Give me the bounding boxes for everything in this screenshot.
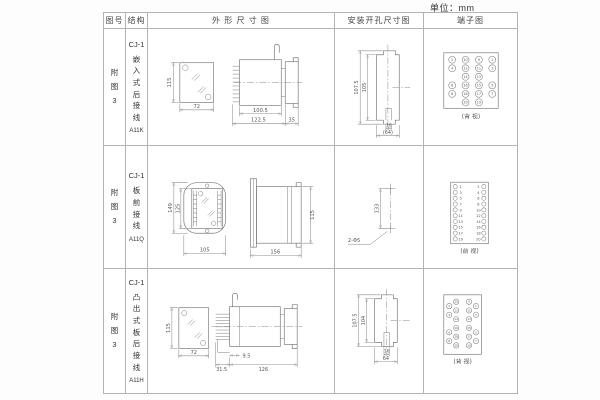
terminal-number: 16 bbox=[454, 326, 458, 330]
terminal-number: 4 bbox=[451, 66, 453, 70]
terminal-number: 12 bbox=[476, 214, 481, 218]
header-terminal-diagram: 端子图 bbox=[424, 13, 518, 29]
terminal-circle bbox=[482, 190, 486, 194]
outline-svg-a11k: 115 72 100.5 122.5 35 bbox=[148, 29, 334, 145]
terminal-number: 20 bbox=[463, 101, 467, 105]
terminal-diagram-a11h: (背 视) 2109141211314136161558181772019 bbox=[424, 269, 518, 394]
terminal-number: 11 bbox=[458, 214, 463, 218]
dim-label: 16 bbox=[386, 122, 392, 128]
mirror-mark-icon bbox=[188, 320, 202, 339]
dim-label: 105 bbox=[362, 83, 368, 92]
terminal-circle bbox=[482, 208, 486, 212]
model-code: A11Q bbox=[129, 237, 144, 243]
terminal-number: 5 bbox=[459, 197, 461, 201]
terminal-svg-a11h: (背 视) 2109141211314136161558181772019 bbox=[424, 269, 517, 393]
terminal-number: 11 bbox=[467, 308, 471, 312]
terminal-number: 20 bbox=[454, 343, 458, 347]
terminal-number: 2 bbox=[448, 304, 450, 308]
terminal-circle bbox=[453, 196, 457, 200]
view-label: (前 视) bbox=[460, 247, 478, 255]
terminal-number: 20 bbox=[476, 237, 481, 241]
terminal-number: 6 bbox=[448, 330, 450, 334]
terminal-circle bbox=[453, 237, 457, 241]
terminal-number: 10 bbox=[476, 208, 481, 212]
terminal-circle bbox=[453, 231, 457, 235]
dim-label: 104 bbox=[361, 316, 367, 325]
structure-row3: CJ-1 凸 出 式 板 后 接 线 A11H bbox=[126, 269, 148, 394]
terminal-number: 15 bbox=[458, 226, 463, 230]
dim-label: 31.5 bbox=[216, 367, 227, 373]
terminal-svg-a11k: (背 视) 2109141211314136161558181772019 bbox=[424, 29, 517, 145]
terminal-number: 7 bbox=[475, 339, 477, 343]
series-label: CJ-1 bbox=[129, 40, 145, 49]
dim-label: (64) bbox=[383, 130, 393, 136]
terminal-circle bbox=[482, 219, 486, 223]
fig-no-row3: 附 图 3 bbox=[104, 269, 126, 394]
mounting-drawing-a11q: 133 2-Φ5 bbox=[335, 146, 424, 269]
terminal-number: 7 bbox=[459, 202, 461, 206]
dim-label: 35 bbox=[288, 118, 295, 124]
terminal-number: 14 bbox=[463, 75, 467, 79]
outline-svg-a11h: 115 72 9.5 31.5 126 bbox=[148, 269, 334, 393]
terminal-circle bbox=[453, 208, 457, 212]
terminal-number: 13 bbox=[458, 220, 463, 224]
mounting-drawing-a11k: 107.5 105 16 (64) bbox=[335, 29, 424, 146]
outline-svg-a11q: 149 125 105 156 115 bbox=[148, 146, 334, 268]
terminal-diagram-a11q: (前 视) 1357911131517192468101214161820 bbox=[424, 146, 518, 269]
spec-table: 图号 结构 外 形 尺 寸 图 安装开孔尺寸图 端子图 附 图 3 CJ-1 嵌… bbox=[103, 12, 518, 394]
terminal-number: 12 bbox=[463, 66, 467, 70]
terminal-number: 15 bbox=[467, 326, 471, 330]
terminal-number: 18 bbox=[476, 231, 481, 235]
terminal-number: 10 bbox=[463, 58, 467, 62]
terminal-number: 17 bbox=[467, 335, 471, 339]
terminal-number: 1 bbox=[459, 185, 461, 189]
mounting-svg-a11k: 107.5 105 16 (64) bbox=[335, 29, 423, 145]
terminal-number: 4 bbox=[448, 313, 450, 317]
view-label: (背 视) bbox=[462, 113, 480, 121]
terminal-circle bbox=[453, 214, 457, 218]
terminal-number: 2 bbox=[477, 185, 479, 189]
terminal-circle bbox=[482, 231, 486, 235]
series-label: CJ-1 bbox=[129, 171, 145, 180]
terminal-diagram-a11k: (背 视) 2109141211314136161558181772019 bbox=[424, 29, 518, 146]
terminal-number: 8 bbox=[451, 92, 453, 96]
terminal-number: 19 bbox=[458, 237, 463, 241]
terminal-number: 4 bbox=[477, 191, 480, 195]
hook bbox=[233, 293, 238, 306]
terminal-circle bbox=[453, 219, 457, 223]
mirror-mark-icon bbox=[192, 74, 206, 94]
terminal-number: 19 bbox=[477, 101, 481, 105]
fig-no-row1: 附 图 3 bbox=[104, 29, 126, 146]
terminal-number: 14 bbox=[454, 317, 458, 321]
terminal-number: 8 bbox=[477, 202, 480, 206]
terminal-number: 6 bbox=[451, 83, 453, 87]
terminal-svg-a11q: (前 视) 1357911131517192468101214161820 bbox=[424, 146, 517, 268]
dim-label: 64 bbox=[383, 356, 389, 362]
dim-label: 122.5 bbox=[251, 118, 266, 124]
dim-label: 125 bbox=[175, 204, 181, 214]
dim-label: 115 bbox=[310, 210, 316, 220]
outline-drawing-a11h: 115 72 9.5 31.5 126 bbox=[148, 269, 335, 394]
series-label: CJ-1 bbox=[129, 278, 145, 287]
hook bbox=[274, 44, 279, 59]
structure-label: 板 前 接 线 bbox=[133, 185, 141, 232]
dim-label: 105 bbox=[200, 248, 210, 254]
terminal-number: 17 bbox=[458, 231, 463, 235]
header-outline-dims: 外 形 尺 寸 图 bbox=[148, 13, 335, 29]
view-label: (背 视) bbox=[453, 358, 471, 366]
mounting-drawing-a11h: 107.5 104 16 64 bbox=[335, 269, 424, 394]
terminal-pins bbox=[216, 314, 230, 339]
structure-row2: CJ-1 板 前 接 线 A11Q bbox=[126, 146, 148, 269]
terminal-number: 12 bbox=[454, 308, 458, 312]
terminal-number: 3 bbox=[459, 191, 461, 195]
outline-drawing-a11k: 115 72 100.5 122.5 35 bbox=[148, 29, 335, 146]
dim-label: 115 bbox=[166, 323, 172, 333]
terminal-circle bbox=[453, 190, 457, 194]
header-structure: 结构 bbox=[126, 13, 148, 29]
model-code: A11H bbox=[129, 378, 144, 384]
terminal-pins bbox=[233, 66, 240, 102]
terminal-number: 10 bbox=[454, 300, 458, 304]
dim-label: 107.5 bbox=[354, 80, 360, 94]
terminal-number: 5 bbox=[475, 330, 477, 334]
structure-label: 凸 出 式 板 后 接 线 bbox=[133, 292, 141, 373]
dim-label: 100.5 bbox=[253, 108, 268, 114]
terminal-number: 5 bbox=[491, 83, 493, 87]
terminal-number: 1 bbox=[475, 304, 477, 308]
terminal-circle bbox=[482, 202, 486, 206]
terminal-number: 18 bbox=[454, 335, 458, 339]
mounting-svg-a11h: 107.5 104 16 64 bbox=[335, 269, 423, 393]
model-code: A11K bbox=[129, 128, 143, 134]
dim-label: 9.5 bbox=[242, 353, 250, 359]
terminal-circle bbox=[482, 185, 486, 189]
terminal-circle bbox=[482, 214, 486, 218]
terminal-number: 17 bbox=[477, 92, 481, 96]
manual-page: 单位：mm 图号 结构 外 形 尺 寸 图 安装开孔尺寸图 端子图 附 图 3 … bbox=[0, 0, 600, 400]
terminal-number: 15 bbox=[477, 83, 481, 87]
terminal-number: 9 bbox=[468, 300, 470, 304]
terminal-number: 16 bbox=[476, 226, 481, 230]
hole-spec-label: 2-Φ5 bbox=[348, 238, 360, 244]
terminal-circle bbox=[482, 196, 486, 200]
dim-label: 115 bbox=[167, 78, 173, 88]
terminal-number: 3 bbox=[491, 66, 493, 70]
terminal-circle bbox=[453, 185, 457, 189]
header-fig-no: 图号 bbox=[104, 13, 126, 29]
terminal-number: 11 bbox=[477, 66, 481, 70]
dim-label: 72 bbox=[190, 350, 197, 356]
terminal-number: 2 bbox=[451, 58, 453, 62]
terminal-circle bbox=[453, 225, 457, 229]
dim-label: 149 bbox=[168, 203, 174, 213]
terminal-circle bbox=[482, 237, 486, 241]
fig-no-row2: 附 图 3 bbox=[104, 146, 126, 269]
terminal-number: 19 bbox=[467, 343, 471, 347]
structure-label: 嵌 入 式 后 接 线 bbox=[133, 54, 141, 124]
terminal-number: 6 bbox=[477, 197, 480, 201]
terminal-circle bbox=[453, 202, 457, 206]
terminal-number: 14 bbox=[476, 220, 481, 224]
mounting-svg-a11q: 133 2-Φ5 bbox=[335, 146, 423, 268]
terminal-number: 18 bbox=[463, 92, 467, 96]
terminal-number: 13 bbox=[467, 317, 471, 321]
terminal-circle bbox=[482, 225, 486, 229]
dim-label: 126 bbox=[259, 367, 268, 373]
terminal-number: 16 bbox=[463, 83, 467, 87]
terminal-number: 8 bbox=[448, 339, 450, 343]
terminal-number: 9 bbox=[459, 208, 461, 212]
terminal-number: 1 bbox=[491, 58, 493, 62]
dim-label: 107.5 bbox=[353, 314, 359, 328]
header-mounting-dims: 安装开孔尺寸图 bbox=[335, 13, 424, 29]
terminal-number: 7 bbox=[491, 92, 493, 96]
dim-label: 156 bbox=[270, 250, 280, 256]
dim-label: 72 bbox=[193, 104, 200, 110]
terminal-strip bbox=[193, 191, 221, 227]
dim-label: 16 bbox=[384, 349, 390, 355]
outline-drawing-a11q: 149 125 105 156 115 bbox=[148, 146, 335, 269]
terminal-number: 3 bbox=[475, 313, 477, 317]
terminal-number: 13 bbox=[477, 75, 481, 79]
terminal-number: 9 bbox=[478, 58, 480, 62]
structure-row1: CJ-1 嵌 入 式 后 接 线 A11K bbox=[126, 29, 148, 146]
dim-label: 133 bbox=[375, 204, 381, 214]
mirror-mark-icon bbox=[202, 198, 215, 217]
